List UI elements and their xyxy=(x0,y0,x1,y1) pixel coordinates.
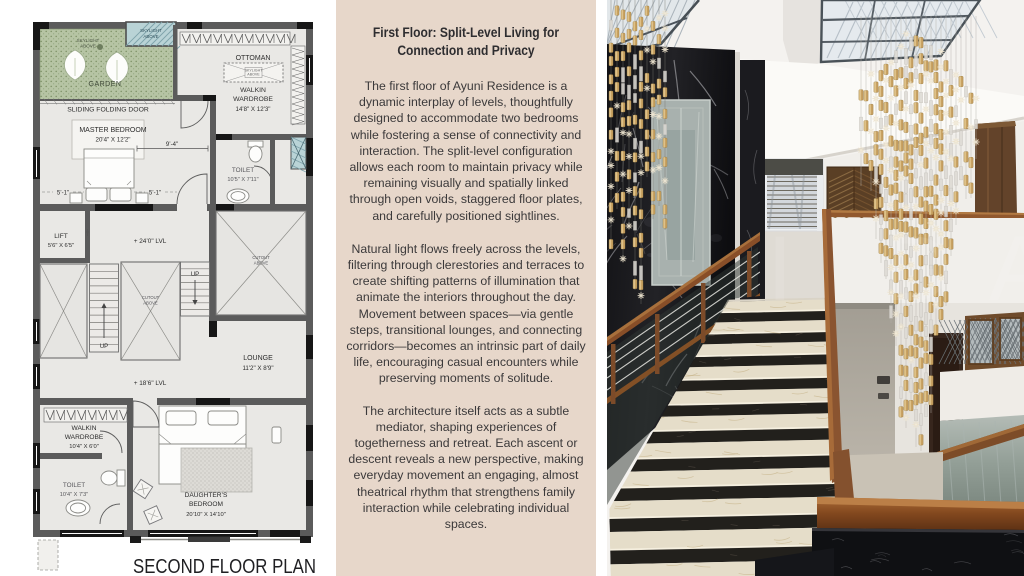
svg-text:5’-1": 5’-1" xyxy=(149,191,161,197)
svg-text:10'4" X 6'0": 10'4" X 6'0" xyxy=(69,444,99,450)
svg-text:10'5" X 7'11": 10'5" X 7'11" xyxy=(227,177,258,183)
svg-text:14'8" X 12'3": 14'8" X 12'3" xyxy=(236,106,271,113)
svg-text:SKYLIGHT: SKYLIGHT xyxy=(140,28,162,33)
svg-text:20’10" X 14’10": 20’10" X 14’10" xyxy=(186,512,226,518)
svg-text:+ 24’0" LVL: + 24’0" LVL xyxy=(134,238,167,245)
svg-text:I: I xyxy=(767,218,793,320)
svg-text:ABOVE: ABOVE xyxy=(254,261,269,266)
svg-text:CUTOUT: CUTOUT xyxy=(252,255,270,260)
svg-text:5’-1": 5’-1" xyxy=(57,191,69,197)
svg-text:WALKIN: WALKIN xyxy=(71,425,96,432)
svg-text:WARDROBE: WARDROBE xyxy=(65,434,104,441)
svg-text:OTTOMAN: OTTOMAN xyxy=(236,55,271,62)
svg-text:ABOVE: ABOVE xyxy=(143,34,158,39)
svg-text:GARDEN: GARDEN xyxy=(89,81,122,88)
svg-text:A: A xyxy=(989,218,1024,320)
svg-text:UP: UP xyxy=(191,272,199,278)
svg-text:D: D xyxy=(885,218,951,320)
svg-text:LOUNGE: LOUNGE xyxy=(243,355,273,362)
svg-text:ABOVE: ABOVE xyxy=(80,44,96,49)
svg-text:SKYLIGHT: SKYLIGHT xyxy=(77,38,100,43)
svg-text:+ 18’6" LVL: + 18’6" LVL xyxy=(134,380,167,387)
svg-text:WARDROBE: WARDROBE xyxy=(233,96,273,103)
svg-text:9’-4": 9’-4" xyxy=(166,142,178,148)
svg-text:BEDROOM: BEDROOM xyxy=(189,501,223,508)
svg-text:TOILET: TOILET xyxy=(232,167,254,174)
svg-text:ABOVE: ABOVE xyxy=(247,73,260,77)
svg-text:UP: UP xyxy=(100,344,108,350)
svg-text:20'4" X 12'2": 20'4" X 12'2" xyxy=(96,137,131,144)
svg-text:MASTER BEDROOM: MASTER BEDROOM xyxy=(79,127,146,134)
svg-text:LIFT: LIFT xyxy=(54,233,68,240)
svg-text:SLIDING FOLDING DOOR: SLIDING FOLDING DOOR xyxy=(67,107,149,114)
svg-text:WALKIN: WALKIN xyxy=(240,87,266,94)
svg-text:DAUGHTER’S: DAUGHTER’S xyxy=(185,492,228,499)
svg-text:10'4" X 7'3": 10'4" X 7'3" xyxy=(60,492,89,498)
svg-text:CUTOUT: CUTOUT xyxy=(142,295,160,300)
svg-text:11'2" X 8'9": 11'2" X 8'9" xyxy=(242,365,273,372)
svg-text:5'6" X 6'5": 5'6" X 6'5" xyxy=(48,243,74,249)
svg-text:TOILET: TOILET xyxy=(63,482,85,489)
svg-text:ABOVE: ABOVE xyxy=(143,301,158,306)
